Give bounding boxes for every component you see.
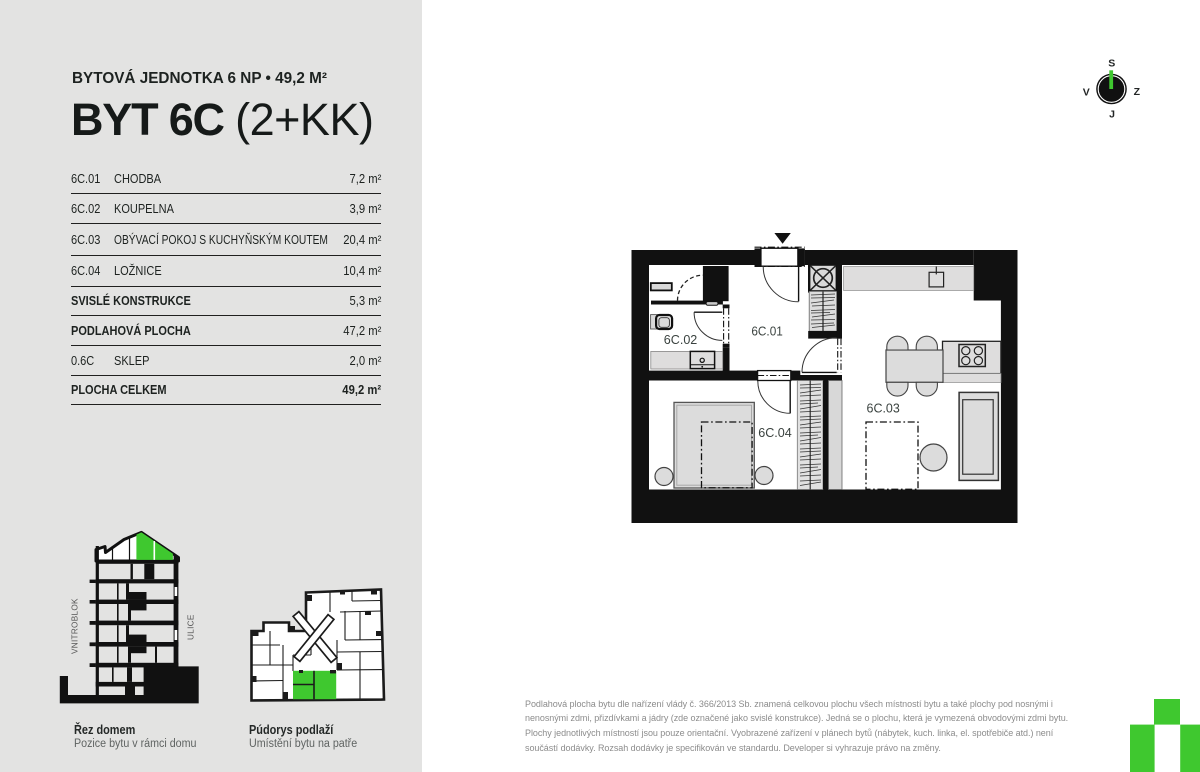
svg-text:V: V xyxy=(1083,87,1090,99)
svg-text:ULICE: ULICE xyxy=(187,614,196,640)
svg-text:VNITROBLOK: VNITROBLOK xyxy=(71,598,80,654)
svg-text:6C.02: 6C.02 xyxy=(664,332,698,347)
svg-text:J: J xyxy=(1109,109,1115,121)
svg-text:6C.04: 6C.04 xyxy=(758,425,792,440)
svg-text:6C.03: 6C.03 xyxy=(867,401,900,416)
svg-text:Z: Z xyxy=(1134,86,1141,98)
svg-text:S: S xyxy=(1108,58,1115,70)
svg-text:6C.01: 6C.01 xyxy=(751,323,782,338)
